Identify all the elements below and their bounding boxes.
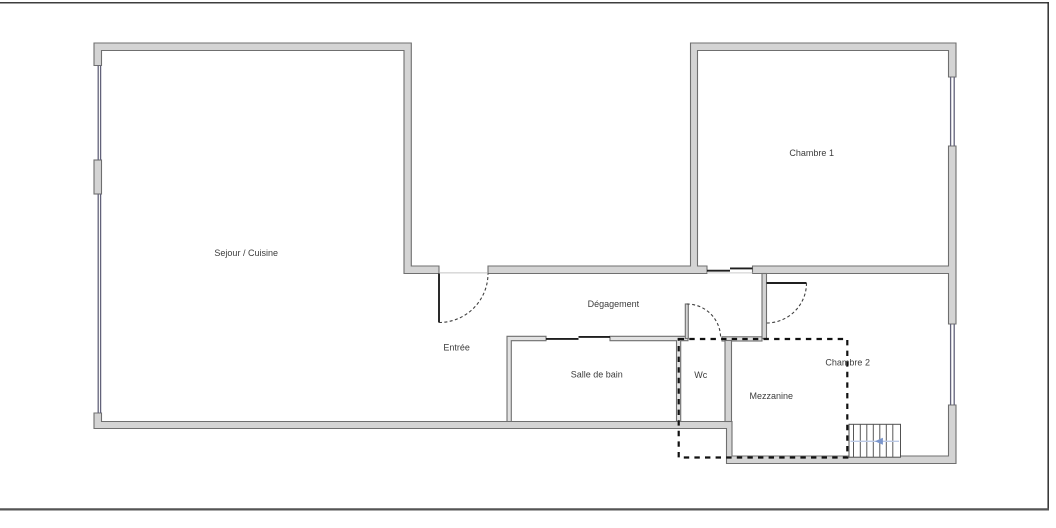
svg-text:Entrée: Entrée — [443, 343, 470, 353]
svg-text:Mezzanine: Mezzanine — [750, 391, 794, 401]
svg-text:Chambre 1: Chambre 1 — [789, 148, 834, 158]
svg-text:Chambre 2: Chambre 2 — [825, 358, 870, 368]
svg-text:Dégagement: Dégagement — [588, 299, 640, 309]
svg-text:Salle de bain: Salle de bain — [571, 370, 623, 380]
svg-text:Wc: Wc — [694, 370, 707, 380]
svg-text:Sejour / Cuisine: Sejour / Cuisine — [214, 248, 278, 258]
